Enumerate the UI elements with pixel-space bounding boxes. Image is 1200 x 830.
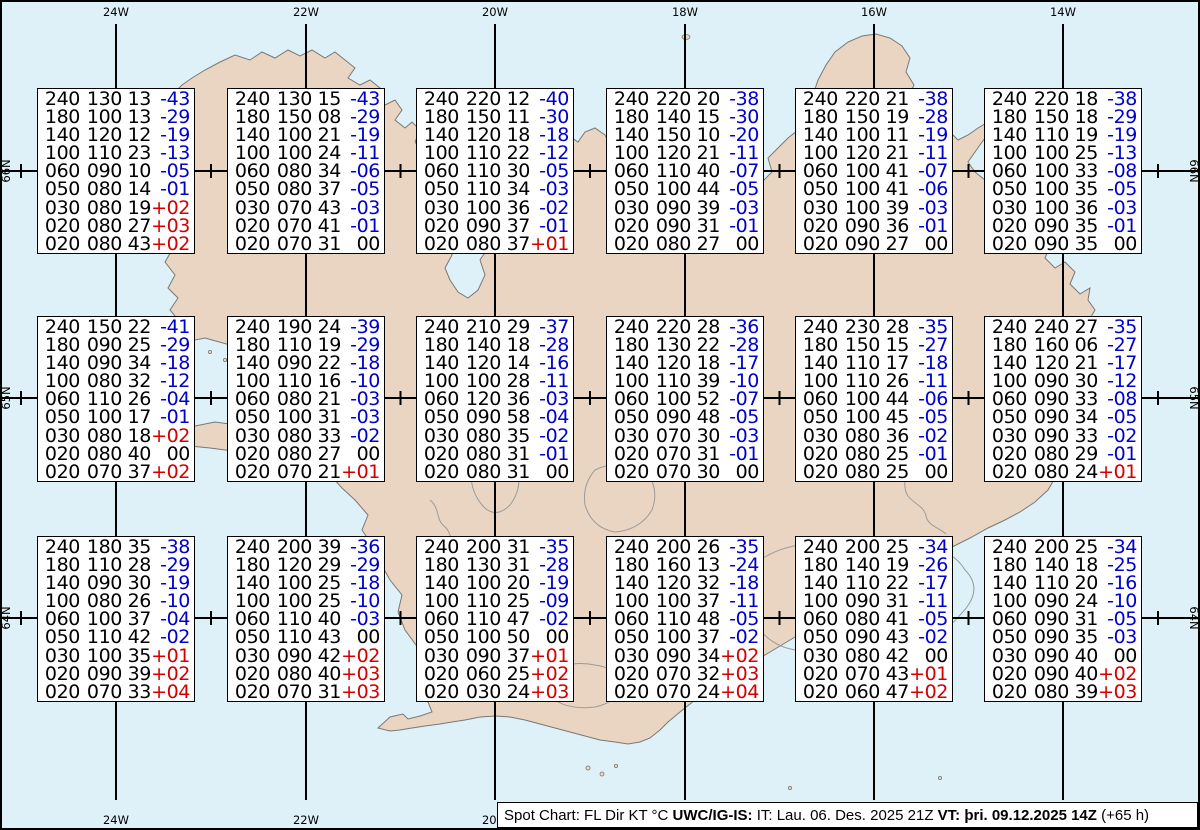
cell-dir: 080 xyxy=(838,427,880,445)
flight-level-row: 0501005000 xyxy=(421,628,570,646)
flight-level-row: 03009039-03 xyxy=(611,199,760,217)
cell-kt: 27 xyxy=(691,235,720,253)
cell-fl: 020 xyxy=(800,463,838,481)
cell-dir: 070 xyxy=(270,463,312,481)
station-box-11: 24023028-3518015015-2714011017-181001102… xyxy=(795,316,953,482)
cell-dir: 070 xyxy=(80,683,122,701)
cell-fl: 020 xyxy=(421,463,459,481)
cell-temp: 00 xyxy=(720,235,759,253)
flight-level-row: 0200802500 xyxy=(800,463,949,481)
flight-level-row: 05008037-05 xyxy=(232,180,381,198)
cell-kt: 35 xyxy=(501,427,530,445)
cell-kt: 14 xyxy=(122,180,151,198)
cell-dir: 080 xyxy=(80,180,122,198)
flight-level-row: 05009035-03 xyxy=(989,628,1138,646)
cell-temp: -05 xyxy=(341,180,380,198)
flight-level-row: 03010036-03 xyxy=(989,199,1138,217)
cell-fl: 030 xyxy=(611,427,649,445)
flight-level-row: 03007030-03 xyxy=(611,427,760,445)
cell-temp: -01 xyxy=(151,180,190,198)
cell-temp: -02 xyxy=(909,427,948,445)
flight-level-row: 0200802700 xyxy=(611,235,760,253)
cell-fl: 030 xyxy=(800,647,838,665)
cell-kt: 25 xyxy=(880,463,909,481)
station-box-13: 24018035-3818011028-2914009030-191000802… xyxy=(37,536,195,702)
cell-fl: 020 xyxy=(421,683,459,701)
cell-temp: 00 xyxy=(1098,235,1137,253)
cell-kt: 39 xyxy=(1069,683,1098,701)
cell-fl: 050 xyxy=(989,628,1027,646)
cell-temp: -02 xyxy=(909,628,948,646)
cell-dir: 100 xyxy=(838,199,880,217)
cell-temp: +02 xyxy=(151,235,190,253)
cell-fl: 050 xyxy=(800,180,838,198)
cell-dir: 080 xyxy=(80,199,122,217)
station-box-9: 24021029-3718014018-2814012014-161001002… xyxy=(416,316,574,482)
cell-temp: -02 xyxy=(530,199,569,217)
cell-temp: 00 xyxy=(909,647,948,665)
status-text-segment: UWC/IG-IS: xyxy=(673,807,753,824)
cell-temp: -02 xyxy=(151,628,190,646)
cell-kt: 31 xyxy=(501,463,530,481)
cell-dir: 070 xyxy=(270,199,312,217)
cell-fl: 030 xyxy=(800,427,838,445)
cell-kt: 43 xyxy=(312,628,341,646)
meridian-label-top: 14W xyxy=(1050,5,1076,19)
cell-kt: 37 xyxy=(312,180,341,198)
flight-level-row: 03009037+01 xyxy=(421,647,570,665)
cell-kt: 24 xyxy=(1069,463,1098,481)
cell-kt: 43 xyxy=(122,235,151,253)
cell-dir: 070 xyxy=(80,463,122,481)
cell-dir: 090 xyxy=(649,199,691,217)
cell-temp: -02 xyxy=(341,427,380,445)
cell-dir: 100 xyxy=(1027,199,1069,217)
station-box-14: 24020039-3618012029-2914010025-181001002… xyxy=(227,536,385,702)
cell-dir: 110 xyxy=(459,180,501,198)
cell-fl: 020 xyxy=(989,683,1027,701)
flight-level-row: 02008039+03 xyxy=(989,683,1138,701)
cell-temp: -02 xyxy=(1098,427,1137,445)
cell-temp: -03 xyxy=(909,199,948,217)
cell-dir: 110 xyxy=(270,628,312,646)
station-box-4: 24022020-3818014015-3014015010-201001202… xyxy=(606,88,764,254)
cell-kt: 37 xyxy=(122,463,151,481)
cell-dir: 100 xyxy=(459,199,501,217)
cell-dir: 100 xyxy=(649,628,691,646)
cell-kt: 50 xyxy=(501,628,530,646)
cell-fl: 030 xyxy=(421,199,459,217)
cell-kt: 43 xyxy=(312,199,341,217)
cell-dir: 090 xyxy=(649,408,691,426)
cell-dir: 100 xyxy=(649,180,691,198)
cell-temp: -03 xyxy=(341,408,380,426)
cell-dir: 100 xyxy=(838,180,880,198)
meridian-label-bottom: 22W xyxy=(293,813,319,827)
station-box-8: 24019024-3918011019-2914009022-181001101… xyxy=(227,316,385,482)
cell-fl: 050 xyxy=(800,408,838,426)
flight-level-row: 02007037+02 xyxy=(42,463,191,481)
cell-dir: 080 xyxy=(270,180,312,198)
cell-fl: 020 xyxy=(611,683,649,701)
cell-kt: 42 xyxy=(122,628,151,646)
station-box-2: 24013015-4318015008-2914010021-191001002… xyxy=(227,88,385,254)
cell-fl: 020 xyxy=(42,235,80,253)
cell-dir: 090 xyxy=(1027,647,1069,665)
station-box-17: 24020025-3418014019-2614011022-171000903… xyxy=(795,536,953,702)
cell-fl: 020 xyxy=(611,463,649,481)
cell-fl: 020 xyxy=(611,235,649,253)
cell-temp: -04 xyxy=(530,408,569,426)
cell-kt: 48 xyxy=(691,408,720,426)
flight-level-row: 03009042+02 xyxy=(232,647,381,665)
flight-level-row: 05010044-05 xyxy=(611,180,760,198)
station-box-3: 24022012-4018015011-3014012018-181001102… xyxy=(416,88,574,254)
cell-dir: 080 xyxy=(80,427,122,445)
flight-level-row: 03007043-03 xyxy=(232,199,381,217)
flight-level-row: 02007031+03 xyxy=(232,683,381,701)
flight-level-row: 03008035-02 xyxy=(421,427,570,445)
cell-fl: 050 xyxy=(42,408,80,426)
flight-level-row: 02007024+04 xyxy=(611,683,760,701)
cell-kt: 35 xyxy=(122,647,151,665)
cell-temp: +03 xyxy=(1098,683,1137,701)
cell-dir: 110 xyxy=(80,628,122,646)
flight-level-row: 02006047+02 xyxy=(800,683,949,701)
station-box-18: 24020025-3418014018-2514011020-161000902… xyxy=(984,536,1142,702)
cell-temp: -03 xyxy=(720,199,759,217)
cell-temp: +02 xyxy=(720,647,759,665)
cell-dir: 100 xyxy=(270,408,312,426)
cell-kt: 31 xyxy=(312,235,341,253)
cell-fl: 050 xyxy=(989,180,1027,198)
cell-temp: -05 xyxy=(1098,180,1137,198)
cell-fl: 020 xyxy=(800,235,838,253)
cell-fl: 030 xyxy=(42,199,80,217)
cell-temp: 00 xyxy=(909,463,948,481)
cell-fl: 020 xyxy=(421,235,459,253)
flight-level-row: 02007021+01 xyxy=(232,463,381,481)
cell-dir: 080 xyxy=(80,235,122,253)
cell-dir: 070 xyxy=(649,683,691,701)
flight-level-row: 03008019+02 xyxy=(42,199,191,217)
cell-temp: +04 xyxy=(720,683,759,701)
meridian-label-top: 20W xyxy=(482,5,508,19)
cell-temp: +01 xyxy=(1098,463,1137,481)
cell-temp: 00 xyxy=(341,235,380,253)
cell-fl: 050 xyxy=(232,628,270,646)
flight-level-row: 0200703000 xyxy=(611,463,760,481)
station-box-5: 24022021-3818015019-2814010011-191001202… xyxy=(795,88,953,254)
cell-fl: 050 xyxy=(611,408,649,426)
cell-dir: 100 xyxy=(80,647,122,665)
cell-fl: 050 xyxy=(42,180,80,198)
cell-fl: 020 xyxy=(989,463,1027,481)
spot-chart: 24W24W22W22W20W20W18W16W14W66N66N65N65N6… xyxy=(0,0,1200,830)
meridian-label-top: 24W xyxy=(103,5,129,19)
flight-level-row: 0200803100 xyxy=(421,463,570,481)
cell-fl: 050 xyxy=(611,628,649,646)
cell-temp: 00 xyxy=(909,235,948,253)
station-box-12: 24024027-3518016006-2714012021-171000903… xyxy=(984,316,1142,482)
cell-temp: +02 xyxy=(341,647,380,665)
meridian-label-top: 22W xyxy=(293,5,319,19)
flight-level-row: 0200903500 xyxy=(989,235,1138,253)
flight-level-row: 05011034-03 xyxy=(421,180,570,198)
cell-temp: -05 xyxy=(909,408,948,426)
cell-dir: 090 xyxy=(1027,408,1069,426)
cell-temp: 00 xyxy=(530,463,569,481)
cell-kt: 34 xyxy=(501,180,530,198)
status-text-segment: IT: Lau. 06. Des. 2025 21Z xyxy=(753,807,938,824)
cell-fl: 050 xyxy=(611,180,649,198)
flight-level-row: 03010035+01 xyxy=(42,647,191,665)
status-text-segment: Spot Chart: FL Dir KT °C xyxy=(504,807,673,824)
flight-level-row: 05010041-06 xyxy=(800,180,949,198)
cell-temp: 00 xyxy=(530,628,569,646)
cell-kt: 40 xyxy=(1069,647,1098,665)
cell-dir: 100 xyxy=(459,628,501,646)
cell-kt: 19 xyxy=(122,199,151,217)
cell-temp: -06 xyxy=(909,180,948,198)
cell-kt: 30 xyxy=(691,427,720,445)
cell-dir: 080 xyxy=(1027,463,1069,481)
cell-temp: -05 xyxy=(1098,408,1137,426)
cell-temp: -03 xyxy=(1098,628,1137,646)
cell-kt: 47 xyxy=(880,683,909,701)
cell-kt: 21 xyxy=(312,463,341,481)
cell-dir: 100 xyxy=(1027,180,1069,198)
station-box-7: 24015022-4118009025-2914009034-181000803… xyxy=(37,316,195,482)
cell-fl: 030 xyxy=(42,427,80,445)
flight-level-row: 03008036-02 xyxy=(800,427,949,445)
cell-dir: 090 xyxy=(649,647,691,665)
cell-kt: 33 xyxy=(1069,427,1098,445)
cell-dir: 070 xyxy=(270,235,312,253)
cell-dir: 100 xyxy=(838,408,880,426)
cell-fl: 030 xyxy=(42,647,80,665)
cell-dir: 080 xyxy=(649,235,691,253)
cell-dir: 090 xyxy=(1027,427,1069,445)
status-text-segment: (+65 h) xyxy=(1097,807,1149,824)
cell-fl: 030 xyxy=(232,647,270,665)
cell-kt: 24 xyxy=(501,683,530,701)
cell-temp: -03 xyxy=(530,180,569,198)
cell-dir: 070 xyxy=(270,683,312,701)
cell-temp: +02 xyxy=(151,199,190,217)
flight-level-row: 05010037-02 xyxy=(611,628,760,646)
cell-fl: 020 xyxy=(42,683,80,701)
cell-kt: 36 xyxy=(1069,199,1098,217)
flight-level-row: 03009033-02 xyxy=(989,427,1138,445)
flight-level-row: 05011042-02 xyxy=(42,628,191,646)
cell-fl: 030 xyxy=(989,199,1027,217)
cell-dir: 090 xyxy=(270,647,312,665)
cell-dir: 070 xyxy=(649,427,691,445)
station-box-16: 24020026-3518016013-2414012032-181001003… xyxy=(606,536,764,702)
cell-dir: 080 xyxy=(1027,683,1069,701)
cell-fl: 050 xyxy=(232,180,270,198)
cell-fl: 030 xyxy=(800,199,838,217)
meridian-label-top: 18W xyxy=(672,5,698,19)
cell-fl: 050 xyxy=(232,408,270,426)
cell-dir: 090 xyxy=(1027,235,1069,253)
flight-level-row: 03010039-03 xyxy=(800,199,949,217)
flight-level-row: 0200902700 xyxy=(800,235,949,253)
cell-dir: 080 xyxy=(459,427,501,445)
flight-level-row: 0501104300 xyxy=(232,628,381,646)
cell-kt: 42 xyxy=(312,647,341,665)
cell-fl: 030 xyxy=(611,199,649,217)
flight-level-row: 02008024+01 xyxy=(989,463,1138,481)
cell-fl: 030 xyxy=(989,647,1027,665)
cell-temp: +02 xyxy=(151,427,190,445)
cell-temp: -03 xyxy=(720,427,759,445)
cell-fl: 020 xyxy=(232,683,270,701)
cell-kt: 24 xyxy=(691,683,720,701)
station-box-15: 24020031-3518013031-2814010020-191001102… xyxy=(416,536,574,702)
flight-level-row: 05008014-01 xyxy=(42,180,191,198)
cell-temp: +03 xyxy=(530,683,569,701)
cell-fl: 050 xyxy=(421,628,459,646)
flight-level-row: 02003024+03 xyxy=(421,683,570,701)
cell-kt: 36 xyxy=(501,199,530,217)
flight-level-row: 03008033-02 xyxy=(232,427,381,445)
flight-level-row: 03009034+02 xyxy=(611,647,760,665)
cell-temp: +02 xyxy=(151,463,190,481)
flight-level-row: 02007033+04 xyxy=(42,683,191,701)
status-bar: Spot Chart: FL Dir KT °C UWC/IG-IS: IT: … xyxy=(497,802,1198,828)
cell-kt: 34 xyxy=(691,647,720,665)
cell-temp: 00 xyxy=(1098,647,1137,665)
cell-kt: 39 xyxy=(691,199,720,217)
cell-fl: 050 xyxy=(421,180,459,198)
cell-dir: 090 xyxy=(838,628,880,646)
cell-temp: -02 xyxy=(530,427,569,445)
cell-kt: 31 xyxy=(312,408,341,426)
cell-temp: +01 xyxy=(530,647,569,665)
cell-kt: 39 xyxy=(880,199,909,217)
cell-kt: 37 xyxy=(691,628,720,646)
cell-temp: +03 xyxy=(341,683,380,701)
flight-level-row: 05009058-04 xyxy=(421,408,570,426)
flight-level-row: 05009034-05 xyxy=(989,408,1138,426)
flight-level-row: 0300904000 xyxy=(989,647,1138,665)
cell-dir: 100 xyxy=(80,408,122,426)
cell-kt: 37 xyxy=(501,235,530,253)
flight-level-row: 0200703100 xyxy=(232,235,381,253)
station-box-10: 24022028-3618013022-2814012018-171001103… xyxy=(606,316,764,482)
cell-fl: 020 xyxy=(232,463,270,481)
cell-dir: 060 xyxy=(838,683,880,701)
flight-level-row: 03010036-02 xyxy=(421,199,570,217)
cell-temp: -02 xyxy=(720,628,759,646)
cell-kt: 42 xyxy=(880,647,909,665)
cell-fl: 020 xyxy=(42,463,80,481)
cell-dir: 080 xyxy=(270,427,312,445)
cell-kt: 36 xyxy=(880,427,909,445)
cell-temp: +01 xyxy=(341,463,380,481)
flight-level-row: 05010045-05 xyxy=(800,408,949,426)
cell-fl: 050 xyxy=(421,408,459,426)
cell-temp: 00 xyxy=(341,628,380,646)
cell-dir: 030 xyxy=(459,683,501,701)
meridian-label-bottom: 24W xyxy=(103,813,129,827)
cell-dir: 090 xyxy=(1027,628,1069,646)
flight-level-row: 0300804200 xyxy=(800,647,949,665)
cell-temp: +01 xyxy=(530,235,569,253)
cell-temp: -03 xyxy=(1098,199,1137,217)
cell-kt: 34 xyxy=(1069,408,1098,426)
flight-level-row: 05010035-05 xyxy=(989,180,1138,198)
cell-temp: 00 xyxy=(720,463,759,481)
station-box-6: 24022018-3818015018-2914011019-191001002… xyxy=(984,88,1142,254)
cell-dir: 080 xyxy=(459,235,501,253)
cell-temp: +02 xyxy=(909,683,948,701)
cell-fl: 030 xyxy=(989,427,1027,445)
cell-fl: 030 xyxy=(611,647,649,665)
cell-kt: 58 xyxy=(501,408,530,426)
cell-kt: 45 xyxy=(880,408,909,426)
cell-kt: 17 xyxy=(122,408,151,426)
cell-fl: 020 xyxy=(989,235,1027,253)
meridian-label-top: 16W xyxy=(861,5,887,19)
cell-fl: 020 xyxy=(800,683,838,701)
cell-kt: 35 xyxy=(1069,235,1098,253)
cell-kt: 35 xyxy=(1069,180,1098,198)
flight-level-row: 05010017-01 xyxy=(42,408,191,426)
cell-kt: 43 xyxy=(880,628,909,646)
cell-kt: 18 xyxy=(122,427,151,445)
cell-dir: 080 xyxy=(459,463,501,481)
status-text-segment: VT: þri. 09.12.2025 14Z xyxy=(938,807,1097,824)
cell-kt: 31 xyxy=(312,683,341,701)
cell-temp: +01 xyxy=(151,647,190,665)
cell-kt: 33 xyxy=(312,427,341,445)
cell-kt: 33 xyxy=(122,683,151,701)
cell-kt: 35 xyxy=(1069,628,1098,646)
cell-kt: 37 xyxy=(501,647,530,665)
cell-fl: 030 xyxy=(421,647,459,665)
cell-fl: 050 xyxy=(42,628,80,646)
cell-dir: 090 xyxy=(838,235,880,253)
cell-temp: -05 xyxy=(720,408,759,426)
flight-level-row: 03008018+02 xyxy=(42,427,191,445)
cell-temp: -03 xyxy=(341,199,380,217)
cell-kt: 30 xyxy=(691,463,720,481)
cell-dir: 090 xyxy=(459,408,501,426)
cell-dir: 080 xyxy=(838,463,880,481)
cell-dir: 090 xyxy=(459,647,501,665)
cell-fl: 050 xyxy=(800,628,838,646)
cell-fl: 030 xyxy=(232,427,270,445)
cell-dir: 070 xyxy=(649,463,691,481)
flight-level-row: 05009048-05 xyxy=(611,408,760,426)
flight-level-row: 02008043+02 xyxy=(42,235,191,253)
cell-temp: -05 xyxy=(720,180,759,198)
flight-level-row: 05009043-02 xyxy=(800,628,949,646)
cell-dir: 080 xyxy=(838,647,880,665)
cell-kt: 41 xyxy=(880,180,909,198)
cell-temp: -01 xyxy=(151,408,190,426)
station-box-1: 24013013-4318010013-2914012012-191001102… xyxy=(37,88,195,254)
cell-fl: 030 xyxy=(421,427,459,445)
cell-fl: 020 xyxy=(232,235,270,253)
cell-kt: 44 xyxy=(691,180,720,198)
flight-level-row: 02008037+01 xyxy=(421,235,570,253)
cell-fl: 030 xyxy=(232,199,270,217)
cell-fl: 050 xyxy=(989,408,1027,426)
